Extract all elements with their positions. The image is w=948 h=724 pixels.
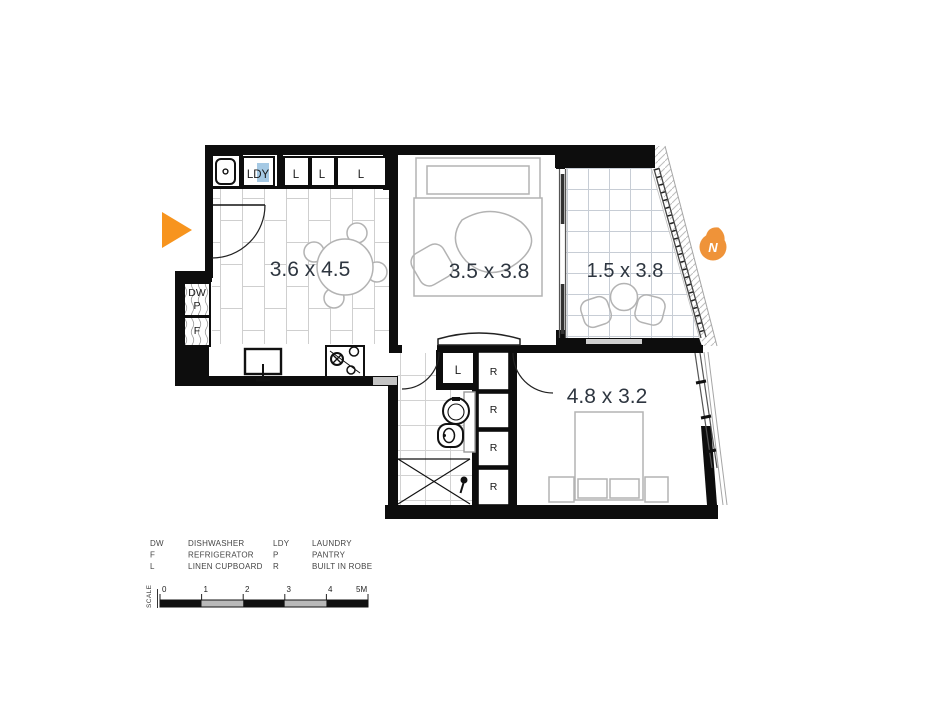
scale-tick-4: 4	[328, 585, 333, 594]
legend-term: REFRIGERATOR	[188, 551, 254, 560]
window-mullion-2	[701, 416, 711, 418]
bath-linen-label: L	[455, 365, 462, 377]
scale-tick-5: 5M	[356, 585, 367, 594]
scale-tick-3: 3	[287, 585, 292, 594]
bed2-side-table-icon	[549, 477, 574, 502]
door-threshold	[373, 377, 397, 385]
scale-tick-0: 0	[162, 585, 167, 594]
scale-segment	[243, 600, 285, 607]
bedroom1-console-icon	[438, 333, 520, 345]
scale-segment	[326, 600, 368, 607]
bed1-headboard-inner	[427, 166, 529, 194]
toilet-button	[443, 434, 446, 437]
fridge-label: F	[194, 325, 200, 337]
living-room-label: 3.6 x 4.5	[270, 258, 351, 281]
floor-plan-page: LDY L L L DW P F L R R R R	[0, 0, 948, 724]
window-mullion	[696, 381, 706, 383]
robe-label-3: R	[490, 442, 498, 454]
bed2-icon	[575, 412, 643, 500]
linen-label-3: L	[358, 169, 365, 181]
cooktop-burner-small-2	[347, 366, 355, 374]
robe-label-2: R	[490, 404, 498, 416]
balcony-door-threshold	[586, 339, 642, 344]
laundry-label: LDY	[247, 169, 270, 181]
robe-label-1: R	[490, 366, 498, 378]
balcony-table-icon	[611, 284, 638, 311]
balcony-label: 1.5 x 3.8	[587, 260, 664, 282]
legend-abbr: LDY	[273, 539, 290, 548]
pantry-label: P	[193, 300, 200, 312]
bedroom1-label: 3.5 x 3.8	[449, 260, 530, 283]
north-icon: N	[700, 227, 727, 260]
legend-abbr: DW	[150, 539, 164, 548]
scale-segment	[160, 600, 202, 607]
legend-abbr: L	[150, 562, 155, 571]
legend-abbr: R	[273, 562, 279, 571]
robe-label-4: R	[490, 481, 498, 493]
legend-abbr: F	[150, 551, 155, 560]
bed2-side-table-icon-2	[645, 477, 668, 502]
shower-head-icon	[461, 477, 468, 484]
legend-term: LAUNDRY	[312, 539, 352, 548]
legend-term: PANTRY	[312, 551, 346, 560]
legend-abbr: P	[273, 551, 279, 560]
scale-word: SCALE	[146, 584, 153, 608]
scale-segment	[202, 600, 244, 607]
legend-term: LINEN CUPBOARD	[188, 562, 263, 571]
bedroom2-label: 4.8 x 3.2	[567, 385, 648, 408]
toilet-icon	[438, 424, 463, 447]
dishwasher-label: DW	[188, 287, 206, 299]
linen-label-1: L	[293, 169, 300, 181]
entry-arrow-icon	[162, 212, 192, 248]
bedroom2-door-arc	[513, 353, 553, 393]
basin-tap-icon	[452, 397, 460, 401]
legend-term: BUILT IN ROBE	[312, 562, 372, 571]
glazing-panel-2	[561, 284, 565, 334]
scale-tick-1: 1	[204, 585, 209, 594]
north-label: N	[708, 240, 718, 255]
legend: DW DISHWASHER LDY LAUNDRY F REFRIGERATOR…	[150, 539, 372, 571]
floor-plan-drawing: LDY L L L DW P F L R R R R	[0, 0, 948, 724]
legend-term: DISHWASHER	[188, 539, 244, 548]
window-mullion-3	[706, 450, 716, 452]
scale-tick-2: 2	[245, 585, 250, 594]
cooktop-burner-small	[350, 347, 359, 356]
scale-segment	[285, 600, 327, 607]
scale-bar: SCALE 0 1 2 3 4 5M	[146, 584, 368, 608]
linen-label-2: L	[319, 169, 326, 181]
glazing-panel	[561, 174, 565, 224]
